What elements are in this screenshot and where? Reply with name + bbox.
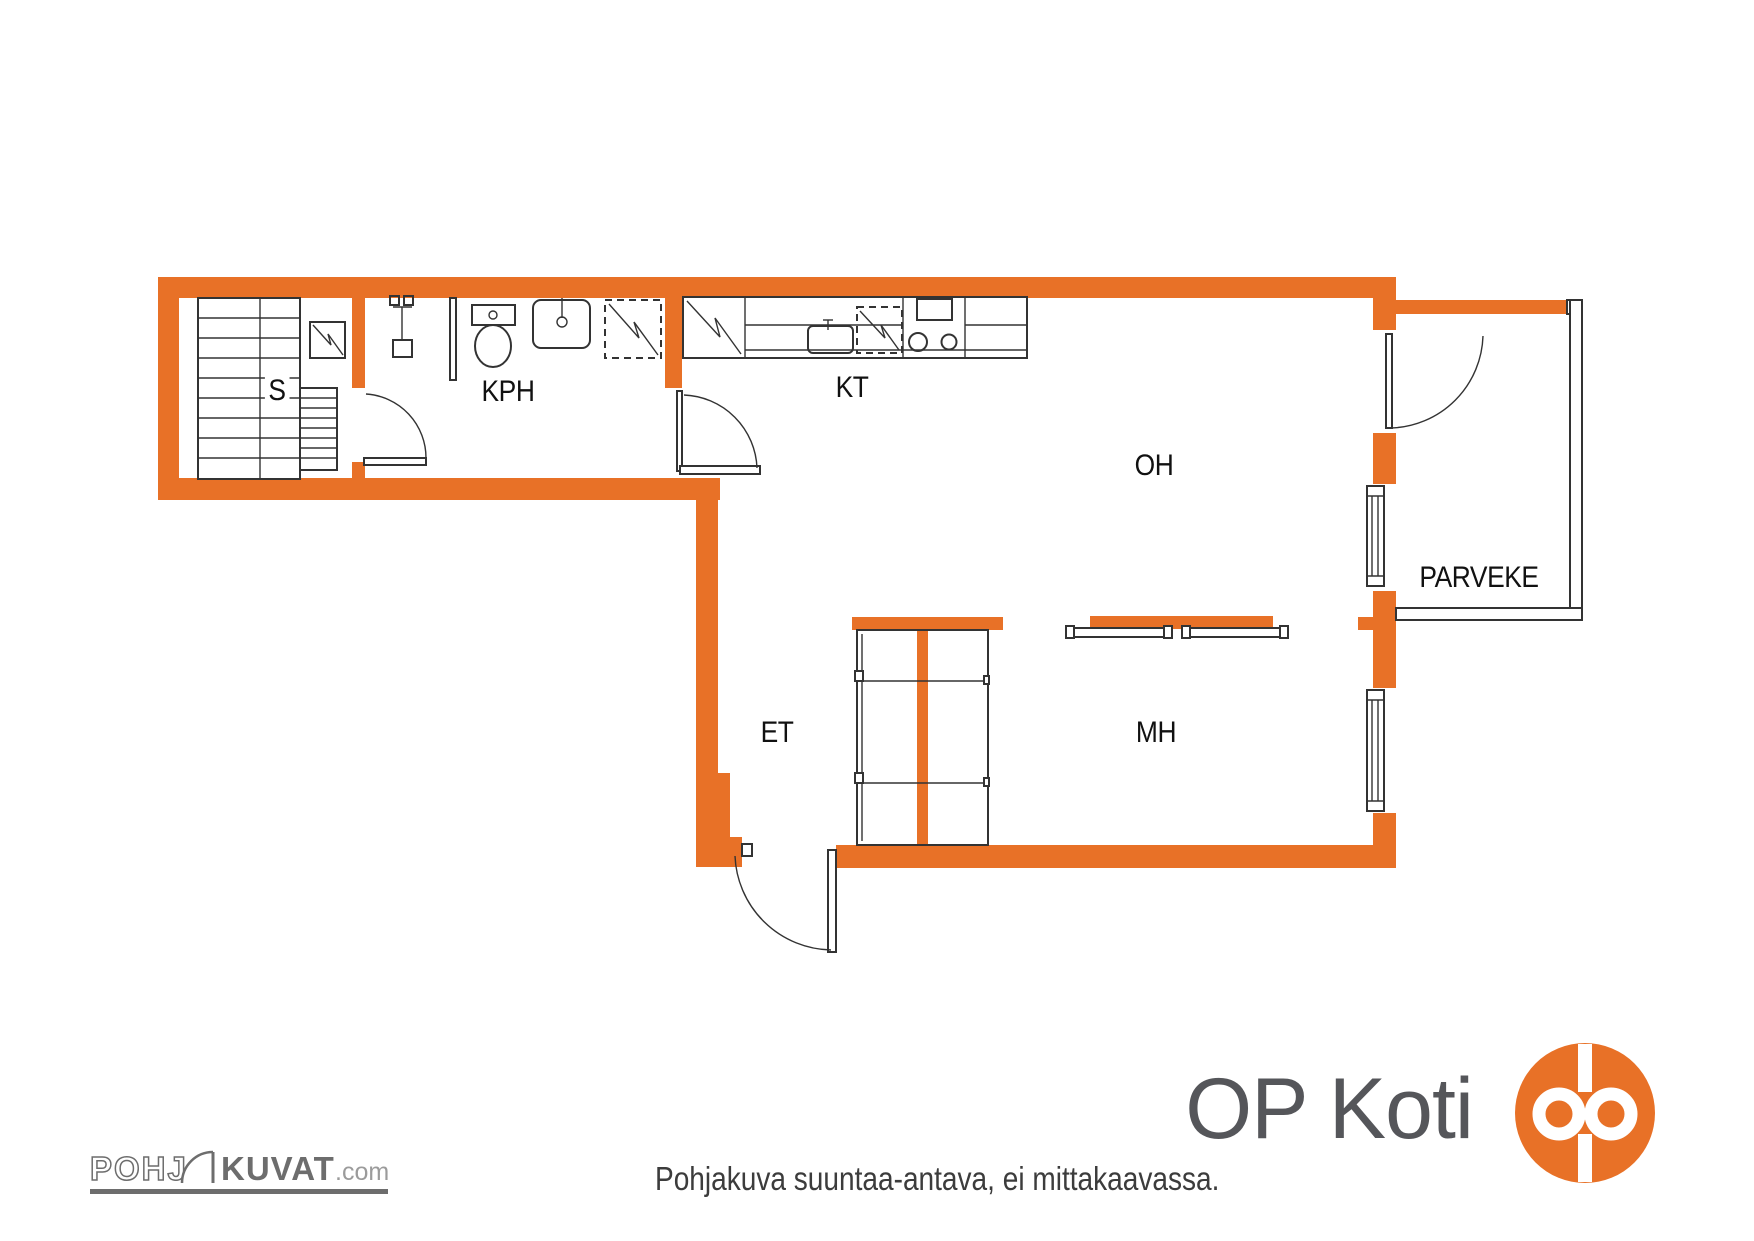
kitchen-counter bbox=[683, 297, 1027, 358]
shower-icon bbox=[390, 296, 413, 357]
room-label-entry: ET bbox=[757, 716, 797, 750]
bathroom-door bbox=[677, 391, 760, 474]
entrance-door bbox=[735, 844, 836, 952]
room-label-living-room: OH bbox=[1131, 449, 1177, 483]
op-logo-icon bbox=[1510, 1038, 1660, 1188]
window-bedroom bbox=[1367, 690, 1384, 811]
fridge-icon bbox=[687, 301, 741, 354]
room-label-balcony: PARVEKE bbox=[1416, 561, 1542, 595]
room-label-bedroom: MH bbox=[1132, 716, 1179, 750]
op-koti-logo-text: OP Koti bbox=[1185, 1066, 1473, 1152]
room-label-sauna: S bbox=[265, 374, 289, 408]
room-label-kitchen: KT bbox=[832, 371, 872, 405]
pohjakuvat-logo: POHJ KUVAT .com bbox=[90, 1146, 388, 1194]
sink-icon bbox=[533, 298, 590, 348]
stove-icon bbox=[909, 299, 957, 351]
window-living-room bbox=[1367, 486, 1384, 586]
balcony-door bbox=[1386, 334, 1483, 428]
pohjakuvat-logo-outline-text: POHJ bbox=[90, 1152, 188, 1185]
sauna-door bbox=[364, 394, 426, 465]
pohjakuvat-logo-bold-text: KUVAT bbox=[221, 1152, 335, 1185]
shower-screen bbox=[450, 298, 456, 380]
sauna-heater-icon bbox=[310, 322, 345, 358]
dishwasher-icon bbox=[857, 307, 902, 353]
pohjakuvat-logo-baseline bbox=[90, 1189, 388, 1194]
pohjakuvat-logo-suffix: .com bbox=[335, 1160, 389, 1185]
room-label-bathroom: KPH bbox=[478, 375, 538, 409]
floor-plan-drawing bbox=[0, 0, 1754, 1241]
door-arc-icon bbox=[180, 1146, 220, 1186]
floor-plan-page: S KPH KT OH PARVEKE ET MH POHJ KUVAT .co… bbox=[0, 0, 1754, 1241]
disclaimer-text: Pohjakuva suuntaa-antava, ei mittakaavas… bbox=[655, 1160, 1219, 1198]
toilet-icon bbox=[472, 305, 515, 367]
washing-machine-icon bbox=[605, 300, 661, 358]
